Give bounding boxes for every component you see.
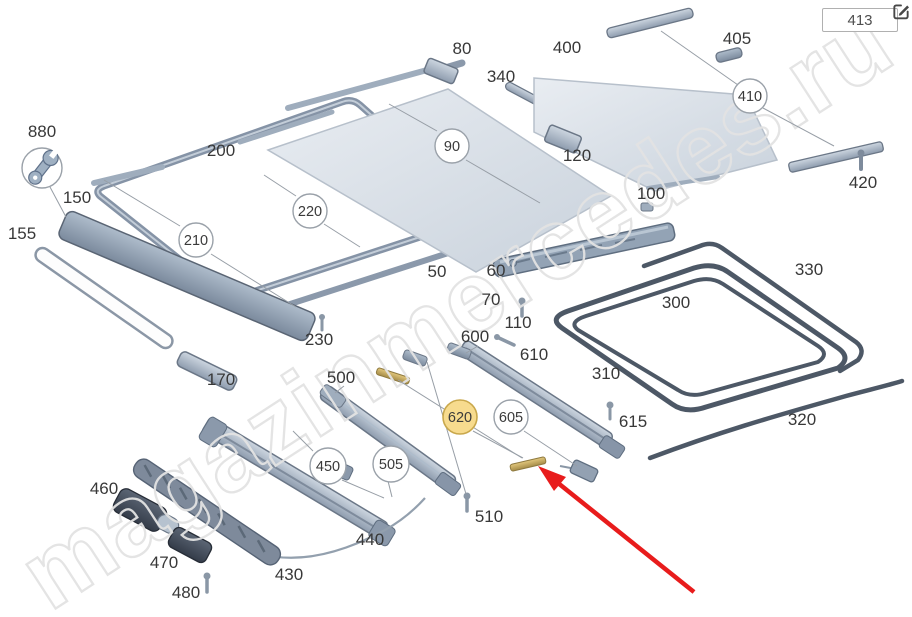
svg-text:220: 220	[298, 204, 322, 220]
callout-150-label: 150	[63, 188, 91, 207]
callout-330-label: 330	[795, 260, 823, 279]
callout-50-label: 50	[428, 262, 447, 281]
callout-405-label: 405	[723, 29, 751, 48]
callout-310-label: 310	[592, 364, 620, 383]
part-seal-310	[556, 266, 845, 410]
part-pin-615	[607, 402, 614, 420]
callout-480-label: 480	[172, 583, 200, 602]
callout-210[interactable]: 210	[179, 223, 213, 257]
edit-icon-glyph	[891, 1, 911, 21]
callout-430-label: 430	[275, 565, 303, 584]
callout-620-highlighted[interactable]: 620	[443, 400, 477, 434]
callout-120-label: 120	[563, 146, 591, 165]
callout-90[interactable]: 90	[435, 129, 469, 163]
callout-320-label: 320	[788, 410, 816, 429]
callout-80-label: 80	[453, 39, 472, 58]
red-arrow	[538, 466, 694, 592]
callout-110-label: 110	[504, 313, 531, 332]
svg-text:210: 210	[184, 233, 208, 249]
parts-diagram-canvas: magazinmercedes.ru 210	[0, 0, 912, 617]
part-bolt-420	[858, 150, 865, 170]
callout-155-label: 155	[8, 224, 36, 243]
callout-340-label: 340	[487, 67, 515, 86]
callout-600-label: 600	[461, 327, 489, 346]
part-rail-top-410	[606, 8, 694, 39]
part-slider-605	[560, 459, 599, 483]
catalog-ref-label: 413	[847, 12, 872, 29]
callout-500-label: 500	[327, 368, 355, 387]
edit-icon[interactable]	[891, 1, 911, 21]
callout-230-label: 230	[305, 330, 333, 349]
svg-text:90: 90	[444, 139, 460, 155]
callout-610-label: 610	[520, 345, 548, 364]
svg-text:450: 450	[316, 459, 340, 475]
callout-460-label: 460	[90, 479, 118, 498]
callout-605[interactable]: 605	[494, 400, 528, 434]
catalog-ref-box[interactable]: 413	[822, 8, 898, 32]
callout-510-label: 510	[475, 507, 503, 526]
svg-text:505: 505	[379, 457, 403, 473]
callout-400-label: 400	[553, 38, 581, 57]
callout-200-label: 200	[207, 141, 235, 160]
svg-text:620: 620	[448, 410, 472, 426]
callout-880-wrench[interactable]	[22, 145, 63, 188]
svg-text:605: 605	[499, 410, 523, 426]
callout-470-label: 470	[150, 553, 178, 572]
callout-100-label: 100	[637, 184, 665, 203]
callout-450[interactable]: 450	[310, 448, 346, 484]
watermark: magazinmercedes.ru	[1, 0, 911, 617]
callout-60-label: 60	[487, 261, 506, 280]
callout-220[interactable]: 220	[293, 194, 327, 228]
part-bolt-510	[464, 493, 471, 512]
callout-410[interactable]: 410	[733, 79, 767, 113]
callout-170-label: 170	[207, 370, 235, 389]
callout-505[interactable]: 505	[373, 446, 409, 482]
callout-300-label: 300	[662, 293, 690, 312]
callout-440-label: 440	[356, 530, 384, 549]
callout-70-label: 70	[482, 290, 501, 309]
exploded-parts-diagram: magazinmercedes.ru 210	[0, 0, 912, 617]
callout-880-label: 880	[28, 122, 56, 141]
part-block-80	[423, 58, 459, 85]
callout-615-label: 615	[619, 412, 647, 431]
svg-text:410: 410	[738, 89, 762, 105]
callout-420-label: 420	[849, 173, 877, 192]
part-bolt-480	[204, 573, 211, 593]
